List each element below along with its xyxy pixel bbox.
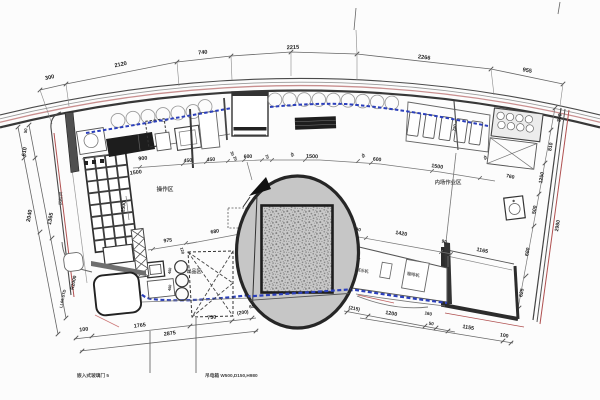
svg-text:100: 100: [79, 326, 89, 333]
svg-text:900: 900: [138, 156, 147, 163]
svg-text:740: 740: [198, 50, 208, 57]
svg-text:嵌入式玻璃门 5: 嵌入式玻璃门 5: [77, 372, 109, 379]
svg-text:内场作业区: 内场作业区: [435, 178, 462, 186]
svg-text:975: 975: [163, 237, 172, 244]
svg-text:750: 750: [207, 314, 217, 321]
svg-text:操作区: 操作区: [157, 185, 174, 193]
svg-text:450: 450: [184, 158, 193, 164]
svg-text:600: 600: [373, 157, 382, 164]
svg-text:互动区: 互动区: [58, 191, 64, 206]
svg-text:2215: 2215: [287, 45, 300, 51]
svg-text:680: 680: [210, 228, 219, 235]
svg-text:吊电箱 W500,D150,H980: 吊电箱 W500,D150,H980: [205, 372, 258, 379]
svg-text:450: 450: [207, 157, 216, 163]
svg-text:600: 600: [244, 154, 253, 160]
svg-text:1500: 1500: [306, 154, 318, 160]
